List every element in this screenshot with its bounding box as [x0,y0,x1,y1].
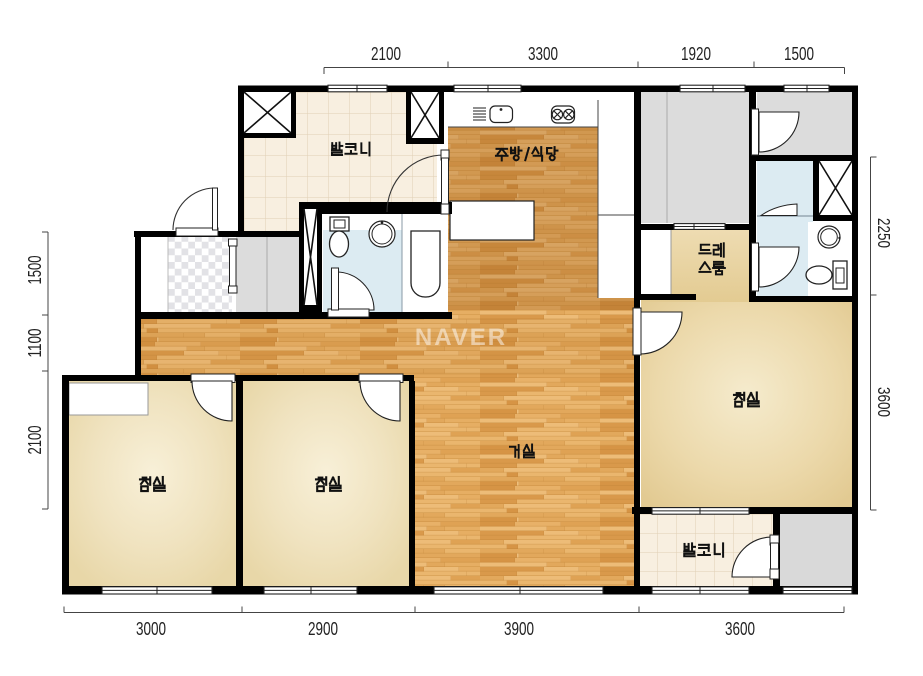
svg-text:1920: 1920 [681,44,711,64]
svg-text:2100: 2100 [25,426,45,455]
svg-text:1500: 1500 [784,44,814,64]
svg-text:3900: 3900 [504,619,534,639]
svg-text:3300: 3300 [528,44,558,64]
svg-text:2900: 2900 [308,619,338,639]
svg-text:3600: 3600 [725,619,755,639]
svg-text:NAVER: NAVER [415,324,507,351]
svg-text:3000: 3000 [136,619,166,639]
svg-text:1100: 1100 [25,329,45,358]
svg-text:2100: 2100 [371,44,401,64]
svg-text:2250: 2250 [874,218,894,248]
svg-text:3600: 3600 [874,387,894,417]
svg-text:1500: 1500 [25,256,45,285]
